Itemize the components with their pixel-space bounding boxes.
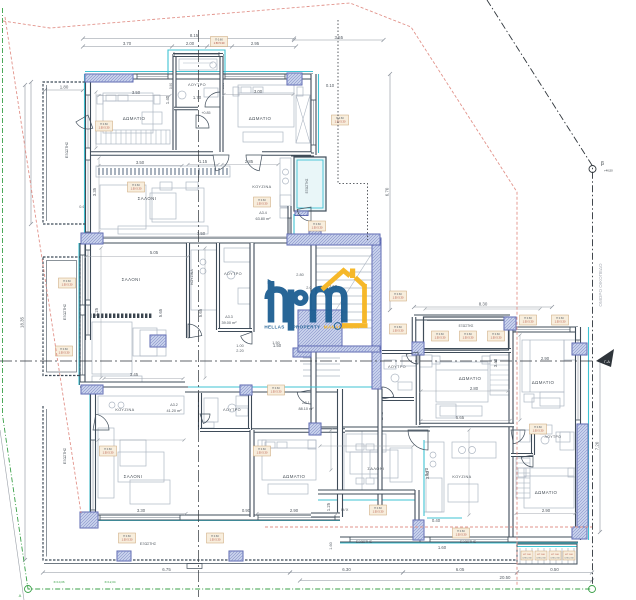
svg-text:3.50: 3.50 — [136, 160, 145, 165]
svg-text:1.50 5.30: 1.50 5.30 — [393, 329, 404, 333]
svg-text:Δ3.4: Δ3.4 — [259, 211, 266, 215]
svg-text:ΚΟΥΖΙΝΑ: ΚΟΥΖΙΝΑ — [115, 408, 134, 412]
svg-text:Π 0.60: Π 0.60 — [313, 222, 321, 226]
svg-text:ΔΩΜΑΤΙΟ: ΔΩΜΑΤΙΟ — [123, 116, 146, 121]
svg-text:1.50 5.30: 1.50 5.30 — [523, 320, 534, 324]
svg-text:3.45: 3.45 — [130, 372, 139, 377]
svg-text:1.50 5.30: 1.50 5.30 — [463, 336, 474, 340]
svg-text:1.50 5.30: 1.50 5.30 — [312, 226, 323, 230]
svg-text:0.90 2.30: 0.90 2.30 — [522, 558, 532, 560]
svg-text:18.35: 18.35 — [20, 316, 25, 328]
svg-text:2.90: 2.90 — [542, 508, 551, 513]
svg-text:5.05: 5.05 — [150, 250, 159, 255]
svg-text:Σ=10,06: Σ=10,06 — [53, 580, 64, 584]
svg-text:ΕΞΩΣΤΗΣ: ΕΞΩΣΤΗΣ — [460, 540, 477, 544]
svg-text:Π 0.60: Π 0.60 — [524, 316, 532, 320]
svg-text:3.35: 3.35 — [92, 187, 97, 196]
svg-text:6.75: 6.75 — [162, 567, 171, 572]
svg-text:0.10: 0.10 — [326, 83, 335, 88]
svg-text:0.90 2.30: 0.90 2.30 — [536, 558, 546, 560]
svg-text:0.90 2.30: 0.90 2.30 — [564, 558, 574, 560]
svg-text:1.50 5.30: 1.50 5.30 — [393, 296, 404, 300]
svg-text:2.00: 2.00 — [186, 41, 195, 46]
svg-text:A: A — [19, 593, 22, 598]
svg-text:3.70: 3.70 — [123, 41, 132, 46]
svg-text:Π 0.60: Π 0.60 — [60, 347, 68, 351]
svg-text:20.50: 20.50 — [500, 575, 512, 580]
svg-text:Γ-Δ: Γ-Δ — [604, 360, 610, 364]
svg-text:ΛΟΥΤΡΟ: ΛΟΥΤΡΟ — [188, 83, 206, 87]
svg-text:2.80: 2.80 — [296, 273, 303, 277]
svg-text:Π 0.60: Π 0.60 — [394, 325, 402, 329]
svg-text:ΣΑΛΟΝΙ: ΣΑΛΟΝΙ — [138, 196, 157, 201]
svg-text:3.30: 3.30 — [137, 508, 146, 513]
svg-text:1.50 5.30: 1.50 5.30 — [435, 336, 446, 340]
svg-text:ΕΞΩΣΤΗΣ: ΕΞΩΣΤΗΣ — [65, 141, 69, 158]
svg-text:1.50 5.30: 1.50 5.30 — [59, 351, 70, 355]
svg-text:Π 0.60: Π 0.60 — [123, 534, 131, 538]
svg-text:ΔΩΜΑΤΙΟ: ΔΩΜΑΤΙΟ — [249, 116, 272, 121]
svg-text:39.00 m²: 39.00 m² — [222, 321, 238, 325]
svg-text:1.70: 1.70 — [193, 95, 202, 100]
svg-text:1.50 5.30: 1.50 5.30 — [555, 320, 566, 324]
svg-text:6.70: 6.70 — [385, 187, 390, 196]
svg-text:ΗΤ 1.60: ΗΤ 1.60 — [551, 554, 560, 556]
svg-text:ΔΩΜΑΤΙΟ: ΔΩΜΑΤΙΟ — [535, 490, 558, 495]
svg-text:2.90: 2.90 — [290, 508, 299, 513]
svg-text:Δ3.3: Δ3.3 — [225, 315, 232, 319]
svg-text:3.30: 3.30 — [425, 470, 430, 479]
svg-text:1.50 5.30: 1.50 5.30 — [271, 390, 282, 394]
svg-text:ΛΟΥΤΡΟ: ΛΟΥΤΡΟ — [545, 435, 562, 439]
svg-text:Σ=12,04: Σ=12,04 — [104, 580, 115, 584]
svg-text:Π 0.60: Π 0.60 — [534, 425, 542, 429]
svg-text:Π 0.60: Π 0.60 — [258, 198, 266, 202]
svg-text:Π 0.60: Π 0.60 — [258, 447, 266, 451]
svg-text:Η/Χ: Η/Χ — [341, 508, 349, 512]
svg-text:1.50 5.30: 1.50 5.30 — [131, 187, 142, 191]
svg-text:63.80 m²: 63.80 m² — [256, 217, 272, 221]
svg-text:Δ3.1: Δ3.1 — [302, 401, 309, 405]
svg-text:1.50 5.30: 1.50 5.30 — [491, 336, 502, 340]
svg-text:Π 0.60: Π 0.60 — [336, 116, 344, 120]
svg-text:8.15: 8.15 — [190, 33, 199, 38]
svg-text:1.50 5.30: 1.50 5.30 — [62, 283, 73, 287]
svg-text:7.20: 7.20 — [595, 441, 600, 450]
svg-text:0.90: 0.90 — [169, 83, 173, 89]
svg-text:ΗΤ 1.60: ΗΤ 1.60 — [523, 554, 532, 556]
svg-text:1.15: 1.15 — [199, 159, 208, 164]
svg-text:PROPERTY: PROPERTY — [293, 324, 321, 329]
svg-text:2.85: 2.85 — [245, 159, 254, 164]
svg-text:ΔΩΜΑΤΙΟ: ΔΩΜΑΤΙΟ — [283, 474, 306, 479]
svg-text:ΕΞΩΣΤΗΣ: ΕΞΩΣΤΗΣ — [356, 540, 373, 544]
svg-text:Δ3.2: Δ3.2 — [170, 403, 177, 407]
svg-text:Π 0.60: Π 0.60 — [104, 447, 112, 451]
svg-text:ΣΑΛΟΝΙ: ΣΑΛΟΝΙ — [122, 277, 141, 282]
svg-text:ΛΟΥΤΡΟ: ΛΟΥΤΡΟ — [223, 408, 241, 412]
svg-text:1.25: 1.25 — [326, 502, 331, 511]
svg-text:1.50 5.30: 1.50 5.30 — [122, 538, 133, 542]
svg-text:5.25: 5.25 — [94, 307, 99, 316]
svg-text:Π 0.60: Π 0.60 — [457, 529, 465, 533]
svg-text:1.50: 1.50 — [273, 343, 282, 348]
svg-text:2.80: 2.80 — [470, 386, 479, 391]
svg-text:5.65: 5.65 — [158, 308, 163, 317]
svg-text:ΕΞΩΣΤΗΣ: ΕΞΩΣΤΗΣ — [140, 542, 157, 546]
svg-text:2.20: 2.20 — [236, 349, 243, 353]
svg-text:88.10 m²: 88.10 m² — [299, 407, 315, 411]
svg-text:0.90 2.30: 0.90 2.30 — [550, 558, 560, 560]
svg-text:ΕΞΩΣΤΗΣ: ΕΞΩΣΤΗΣ — [459, 324, 474, 328]
svg-text:5.65: 5.65 — [456, 415, 465, 420]
svg-text:1.50 5.30: 1.50 5.30 — [456, 533, 467, 537]
svg-text:0.40: 0.40 — [432, 518, 441, 523]
svg-text:ΟΜΟΡΟ ΟΙΚΟΠΕΔΟ: ΟΜΟΡΟ ΟΙΚΟΠΕΔΟ — [598, 263, 603, 307]
svg-text:8.30: 8.30 — [479, 302, 488, 307]
svg-text:0.90: 0.90 — [242, 508, 251, 513]
svg-text:Π 0.60: Π 0.60 — [211, 534, 219, 538]
svg-text:ΣΑΛΟΝΙ: ΣΑΛΟΝΙ — [367, 466, 384, 471]
svg-text:ΛΟΥΤΡΟ: ΛΟΥΤΡΟ — [388, 365, 406, 369]
svg-text:41.20 m²: 41.20 m² — [167, 409, 183, 413]
svg-text:Π 0.60: Π 0.60 — [215, 37, 223, 41]
svg-text:Π 0.60: Π 0.60 — [394, 292, 402, 296]
svg-text:0.50: 0.50 — [550, 567, 559, 572]
svg-text:1.50 5.30: 1.50 5.30 — [373, 510, 384, 514]
svg-text:ΛΟΥΤΡΟ: ΛΟΥΤΡΟ — [224, 272, 242, 276]
svg-text:Π 0.60: Π 0.60 — [374, 506, 382, 510]
svg-text:Π 0.60: Π 0.60 — [436, 332, 444, 336]
svg-text:ΣΑΛΟΝΙ: ΣΑΛΟΝΙ — [124, 474, 143, 479]
svg-text:2.90: 2.90 — [541, 356, 550, 361]
svg-text:MANAGEMENT: MANAGEMENT — [324, 324, 360, 329]
svg-text:3.50: 3.50 — [132, 90, 141, 95]
svg-text:ΗΤ 1.60: ΗΤ 1.60 — [565, 554, 574, 556]
svg-text:ΗΤ 1.60: ΗΤ 1.60 — [537, 554, 546, 556]
svg-text:HELLAS: HELLAS — [264, 324, 284, 329]
svg-text:6.30: 6.30 — [342, 567, 351, 572]
svg-text:+46,50: +46,50 — [604, 169, 613, 173]
svg-text:Π 0.60: Π 0.60 — [464, 332, 472, 336]
svg-text:1.50 5.30: 1.50 5.30 — [214, 41, 225, 45]
svg-text:β: β — [601, 161, 604, 167]
svg-text:1.50 5.30: 1.50 5.30 — [99, 126, 110, 130]
svg-text:ΚΟΥΖΙΝΑ: ΚΟΥΖΙΝΑ — [452, 475, 471, 479]
svg-text:1.50 5.30: 1.50 5.30 — [210, 538, 221, 542]
svg-text:6.05: 6.05 — [456, 567, 465, 572]
svg-text:ΕΞΩΣΤΗΣ: ΕΞΩΣΤΗΣ — [63, 447, 67, 464]
svg-text:1.80: 1.80 — [60, 85, 69, 90]
svg-text:ΔΩΜΑΤΙΟ: ΔΩΜΑΤΙΟ — [459, 376, 482, 381]
svg-text:1.60: 1.60 — [438, 545, 447, 550]
svg-text:3.00: 3.00 — [254, 89, 263, 94]
svg-text:Π 0.60: Π 0.60 — [63, 279, 71, 283]
svg-text:Π 0.60: Π 0.60 — [556, 316, 564, 320]
svg-text:+0.85: +0.85 — [201, 111, 210, 115]
svg-text:ΕΞΩΣΤΗΣ: ΕΞΩΣΤΗΣ — [305, 179, 309, 194]
svg-text:3.40: 3.40 — [493, 358, 498, 367]
svg-text:1.50 5.30: 1.50 5.30 — [257, 202, 268, 206]
svg-text:1.00: 1.00 — [236, 344, 243, 348]
svg-text:ΔΩΜΑΤΙΟ: ΔΩΜΑΤΙΟ — [532, 380, 555, 385]
svg-text:Π 0.60: Π 0.60 — [492, 332, 500, 336]
svg-text:Π 0.60: Π 0.60 — [100, 122, 108, 126]
svg-text:ΕΞΩΣΤΗΣ: ΕΞΩΣΤΗΣ — [63, 303, 67, 320]
svg-text:2.95: 2.95 — [251, 41, 260, 46]
svg-text:1.50 5.30: 1.50 5.30 — [533, 429, 544, 433]
svg-text:Π 0.60: Π 0.60 — [132, 183, 140, 187]
svg-text:ΚΟΥΖΙΝΑ: ΚΟΥΖΙΝΑ — [252, 185, 271, 189]
svg-text:1.50 5.30: 1.50 5.30 — [335, 120, 346, 124]
svg-text:ΚΟΥΖΙΝΑ: ΚΟΥΖΙΝΑ — [190, 269, 194, 285]
svg-text:1.50 5.30: 1.50 5.30 — [103, 451, 114, 455]
svg-text:Π 0.60: Π 0.60 — [272, 386, 280, 390]
svg-text:1.60: 1.60 — [329, 542, 333, 549]
svg-text:1.50 5.30: 1.50 5.30 — [257, 451, 268, 455]
svg-text:3.55: 3.55 — [334, 35, 343, 40]
